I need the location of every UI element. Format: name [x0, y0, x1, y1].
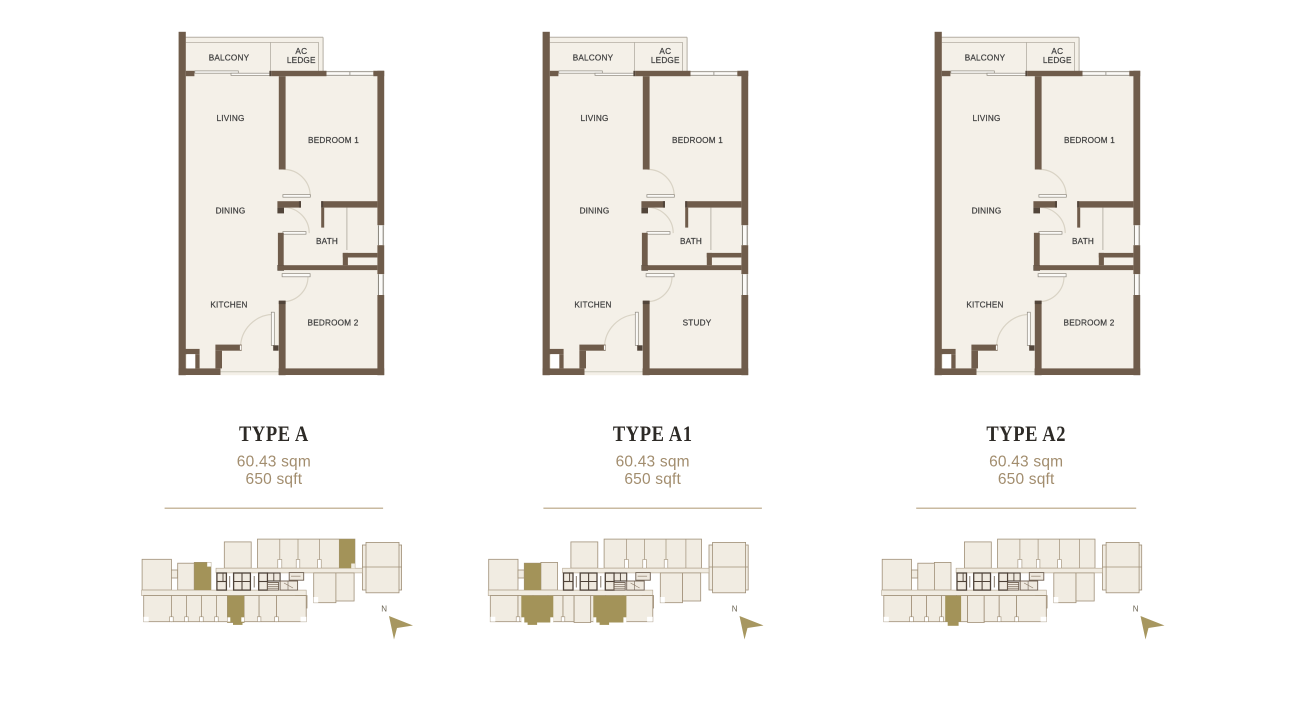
- svg-text:60.43 sqm: 60.43 sqm: [616, 453, 690, 470]
- svg-text:DINING: DINING: [972, 207, 1002, 216]
- svg-text:650 sqft: 650 sqft: [998, 471, 1055, 488]
- svg-text:N: N: [732, 604, 738, 613]
- svg-text:N: N: [381, 604, 387, 613]
- svg-text:BALCONY: BALCONY: [209, 53, 250, 62]
- svg-text:BEDROOM 2: BEDROOM 2: [1064, 318, 1115, 327]
- svg-text:650 sqft: 650 sqft: [624, 471, 681, 488]
- svg-text:BEDROOM 1: BEDROOM 1: [1064, 136, 1115, 145]
- svg-text:LEDGE: LEDGE: [1043, 56, 1072, 65]
- svg-text:BATH: BATH: [1072, 237, 1094, 246]
- svg-text:BEDROOM 1: BEDROOM 1: [308, 136, 359, 145]
- svg-text:650 sqft: 650 sqft: [246, 471, 303, 488]
- svg-text:LIVING: LIVING: [972, 114, 1000, 123]
- svg-text:TYPE A1: TYPE A1: [613, 423, 693, 447]
- svg-text:TYPE A: TYPE A: [239, 423, 309, 447]
- svg-text:LIVING: LIVING: [580, 114, 608, 123]
- svg-text:LIVING: LIVING: [216, 114, 244, 123]
- svg-text:BATH: BATH: [680, 237, 702, 246]
- svg-text:DINING: DINING: [216, 207, 246, 216]
- svg-text:DINING: DINING: [580, 207, 610, 216]
- svg-text:BEDROOM 1: BEDROOM 1: [672, 136, 723, 145]
- svg-text:60.43 sqm: 60.43 sqm: [989, 453, 1063, 470]
- svg-text:KITCHEN: KITCHEN: [966, 301, 1003, 310]
- svg-text:BATH: BATH: [316, 237, 338, 246]
- svg-text:KITCHEN: KITCHEN: [210, 301, 247, 310]
- svg-text:60.43 sqm: 60.43 sqm: [237, 453, 311, 470]
- svg-text:N: N: [1133, 604, 1139, 613]
- svg-text:AC: AC: [295, 47, 307, 56]
- svg-text:BEDROOM 2: BEDROOM 2: [308, 318, 359, 327]
- svg-text:TYPE A2: TYPE A2: [986, 423, 1066, 447]
- svg-text:STUDY: STUDY: [683, 318, 712, 327]
- svg-text:BALCONY: BALCONY: [965, 53, 1006, 62]
- svg-text:KITCHEN: KITCHEN: [574, 301, 611, 310]
- svg-text:LEDGE: LEDGE: [287, 56, 316, 65]
- svg-text:BALCONY: BALCONY: [573, 53, 614, 62]
- svg-text:AC: AC: [1051, 47, 1063, 56]
- svg-text:AC: AC: [659, 47, 671, 56]
- svg-text:LEDGE: LEDGE: [651, 56, 680, 65]
